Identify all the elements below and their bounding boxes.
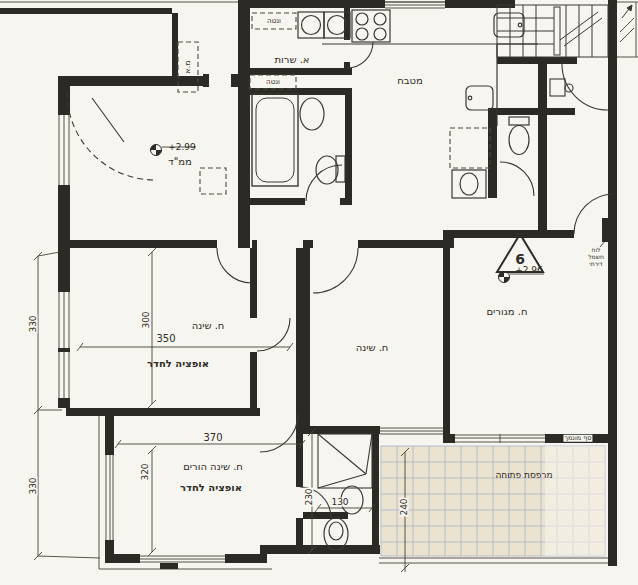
window-parents <box>106 455 113 540</box>
room-label-kitchen: מטבח <box>397 76 423 86</box>
room-label-balcony: מרפסת פתוחה <box>495 471 552 480</box>
window-parents-south <box>140 556 225 562</box>
door-swing-service <box>347 42 373 68</box>
option-note-parents: אופציה לחדר <box>180 483 242 493</box>
dim-balcony-depth: 240 <box>400 497 409 516</box>
room-label-bedroom1: ח. שינה <box>192 321 225 331</box>
door-swing-corridor <box>257 318 290 351</box>
kitchen-counter <box>322 13 538 198</box>
kitchen-sink-top <box>494 13 524 37</box>
dashed-features <box>178 13 490 194</box>
room-label-parents: ח. שינה הורים <box>183 462 243 472</box>
kitchen-base-unit <box>452 170 486 198</box>
door-swing-parents <box>260 414 298 452</box>
window-balcony-slider <box>455 434 545 443</box>
window-kitchen-top <box>385 2 445 8</box>
bath-sink <box>300 98 324 130</box>
vent-shaft-mid-label: ונטה <box>266 79 280 86</box>
lowered-sill-label: סף מונמך <box>563 435 592 442</box>
dim-left-lower: 330 <box>29 476 38 495</box>
electrical-panel <box>602 218 609 242</box>
water-heater-label: ד.נ <box>540 84 547 93</box>
floor-plan: ונטה ונטה מ.א א. שרות מטבח +2.99 ממ"ד ד.… <box>0 0 638 585</box>
room-label-mamad: ממ"ד <box>168 157 192 167</box>
dim-parents-width: 370 <box>202 433 223 443</box>
bath-toilet <box>316 156 345 184</box>
dim-bedroom1-width: 350 <box>155 334 176 344</box>
ac-niche-label: מ.א <box>184 60 192 73</box>
stove-burners <box>352 10 390 42</box>
bathtub <box>252 94 298 186</box>
room-label-service: א. שרות <box>274 55 309 65</box>
washer-dryer <box>298 12 350 38</box>
option-note-bedroom1: אופציה לחדר <box>147 359 209 369</box>
dim-bedroom1-depth: 300 <box>142 310 151 329</box>
stairs-direction-arrow <box>622 5 632 18</box>
window-bedroom2-south <box>380 428 443 434</box>
dim-shower-width: 130 <box>330 498 349 507</box>
blast-window-swing <box>67 92 155 180</box>
dim-shower-depth: 230 <box>305 487 314 506</box>
room-label-bedroom2: ח. שינה <box>356 343 389 353</box>
door-swing-bedroom1 <box>217 248 252 283</box>
window-mamad <box>59 115 69 185</box>
wc-toilet <box>509 117 529 155</box>
shower-stall <box>318 434 372 488</box>
door-swing-bedroom2 <box>313 248 358 293</box>
mamad-filter-box <box>200 168 226 194</box>
panel-label-3: דירתי <box>589 261 602 267</box>
balcony-tile-grid <box>381 446 605 556</box>
dim-left-upper: 330 <box>29 314 38 333</box>
kitchen-sink-side <box>466 86 493 110</box>
symbols <box>151 145 607 283</box>
door-swing-entry <box>562 64 608 110</box>
elevation-living: +2.96 <box>515 266 543 275</box>
vent-shaft-top-label: ונטה <box>267 18 281 25</box>
window-option-room <box>59 352 69 398</box>
water-heater <box>550 79 573 96</box>
room-label-living: ח. מגורים <box>486 307 527 317</box>
window-bedroom1 <box>59 292 69 348</box>
door-swing-wc <box>500 162 534 196</box>
fridge-space <box>450 128 490 168</box>
elevation-mamad: +2.99 <box>168 143 196 152</box>
dim-parents-depth: 320 <box>141 462 150 481</box>
